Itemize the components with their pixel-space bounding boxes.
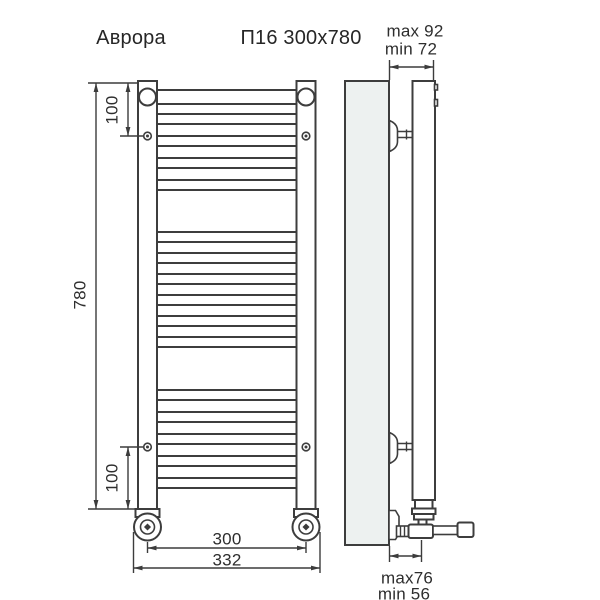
dimension-height-780 — [88, 83, 138, 509]
towel-rail-rungs — [150, 90, 304, 488]
top-right-bracket-circle — [298, 89, 315, 106]
dim-height-label: 780 — [72, 281, 89, 310]
dim-depth-top-min-label: min 72 — [385, 41, 437, 58]
technical-drawing-canvas: Аврора П16 300x780 780 100 100 300 332 m… — [0, 0, 600, 600]
upper-bracket-side — [390, 121, 415, 152]
left-bottom-valve — [134, 509, 161, 541]
dimension-depth-bottom — [390, 540, 422, 562]
top-left-bracket-circle — [139, 89, 156, 106]
model-size-label: П16 300x780 — [240, 28, 361, 48]
dim-depth-top-max-label: max 92 — [387, 23, 444, 40]
wall-panel — [345, 81, 389, 545]
top-rung-stub — [435, 85, 438, 91]
rail-side-profile — [413, 81, 436, 500]
right-bottom-valve — [293, 509, 320, 541]
side-bottom-valve-assembly — [389, 500, 474, 540]
dim-offset-top-label: 100 — [104, 96, 121, 125]
dim-depth-bottom-min-label: min 56 — [378, 586, 430, 600]
dim-width-axis-label: 300 — [213, 531, 242, 548]
dimension-depth-top — [390, 60, 434, 80]
side-view — [345, 81, 474, 545]
drawing-linework — [0, 0, 600, 600]
lower-bracket-side — [390, 433, 415, 464]
dim-offset-bottom-label: 100 — [104, 464, 121, 493]
dim-width-overall-label: 332 — [213, 552, 242, 569]
front-view — [134, 81, 320, 541]
top-rung-stub — [435, 100, 438, 107]
product-name-label: Аврора — [96, 28, 166, 48]
